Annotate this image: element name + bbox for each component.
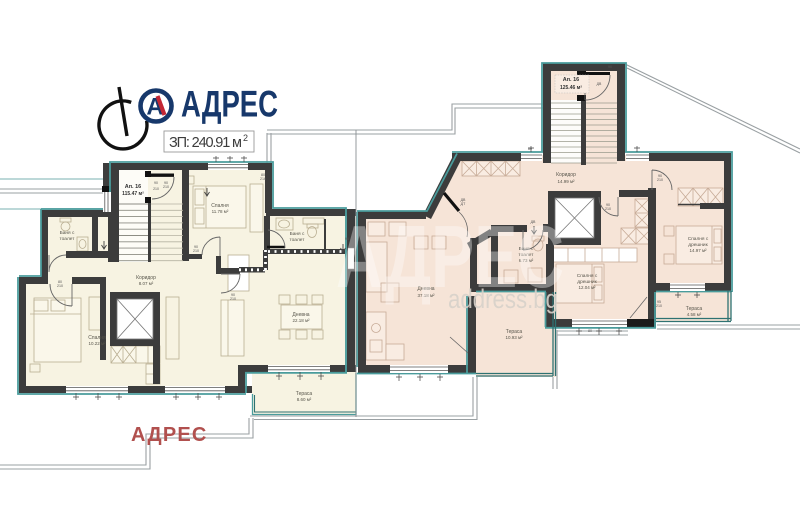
svg-text:210: 210 [193,249,199,253]
svg-text:90: 90 [154,181,158,185]
svg-text:125.46 м²: 125.46 м² [560,85,582,91]
svg-text:22.18 м²: 22.18 м² [292,318,310,323]
svg-text:АДРЕС: АДРЕС [131,424,208,446]
svg-text:210: 210 [656,304,662,308]
svg-text:14.97 м²: 14.97 м² [689,248,707,253]
svg-text:4.58 м²: 4.58 м² [687,312,702,317]
svg-text:address.bg: address.bg [448,284,558,314]
svg-text:ЗП: 240.91 м: ЗП: 240.91 м [169,135,242,151]
svg-text:10.93 м²: 10.93 м² [505,335,523,340]
svg-text:Баня с: Баня с [290,231,305,237]
svg-text:210: 210 [153,187,159,191]
svg-text:тоалет: тоалет [60,237,76,242]
svg-text:210: 210 [163,185,169,189]
svg-text:216: 216 [260,177,266,181]
svg-text:80: 80 [528,147,532,151]
svg-text:Спалня с: Спалня с [577,273,598,279]
svg-text:Баня с: Баня с [60,230,75,236]
svg-text:Ап. 16: Ап. 16 [125,184,141,190]
svg-text:ДВ: ДВ [597,82,602,86]
svg-text:80: 80 [588,329,592,333]
svg-text:14.99 м²: 14.99 м² [557,179,575,184]
svg-text:115.47 м²: 115.47 м² [122,191,144,197]
svg-text:АДРЕС: АДРЕС [181,84,278,125]
svg-text:12.04 м²: 12.04 м² [578,285,596,290]
svg-text:8.07 м²: 8.07 м² [139,281,154,286]
svg-text:210: 210 [657,178,663,182]
svg-text:90: 90 [608,65,612,69]
svg-text:10.22 м²: 10.22 м² [88,341,106,346]
svg-text:Коридор: Коридор [556,172,576,178]
svg-text:Спалня с: Спалня с [688,236,709,242]
svg-text:ДТ: ДТ [461,202,466,206]
svg-text:Ап. 16: Ап. 16 [563,77,579,83]
svg-text:210: 210 [57,284,63,288]
svg-text:11.78 м²: 11.78 м² [212,209,229,214]
svg-text:8.60 м²: 8.60 м² [297,397,312,402]
svg-text:210: 210 [605,207,611,211]
svg-text:2: 2 [243,133,248,143]
svg-text:210: 210 [230,297,236,301]
svg-text:тоалет: тоалет [290,238,306,243]
